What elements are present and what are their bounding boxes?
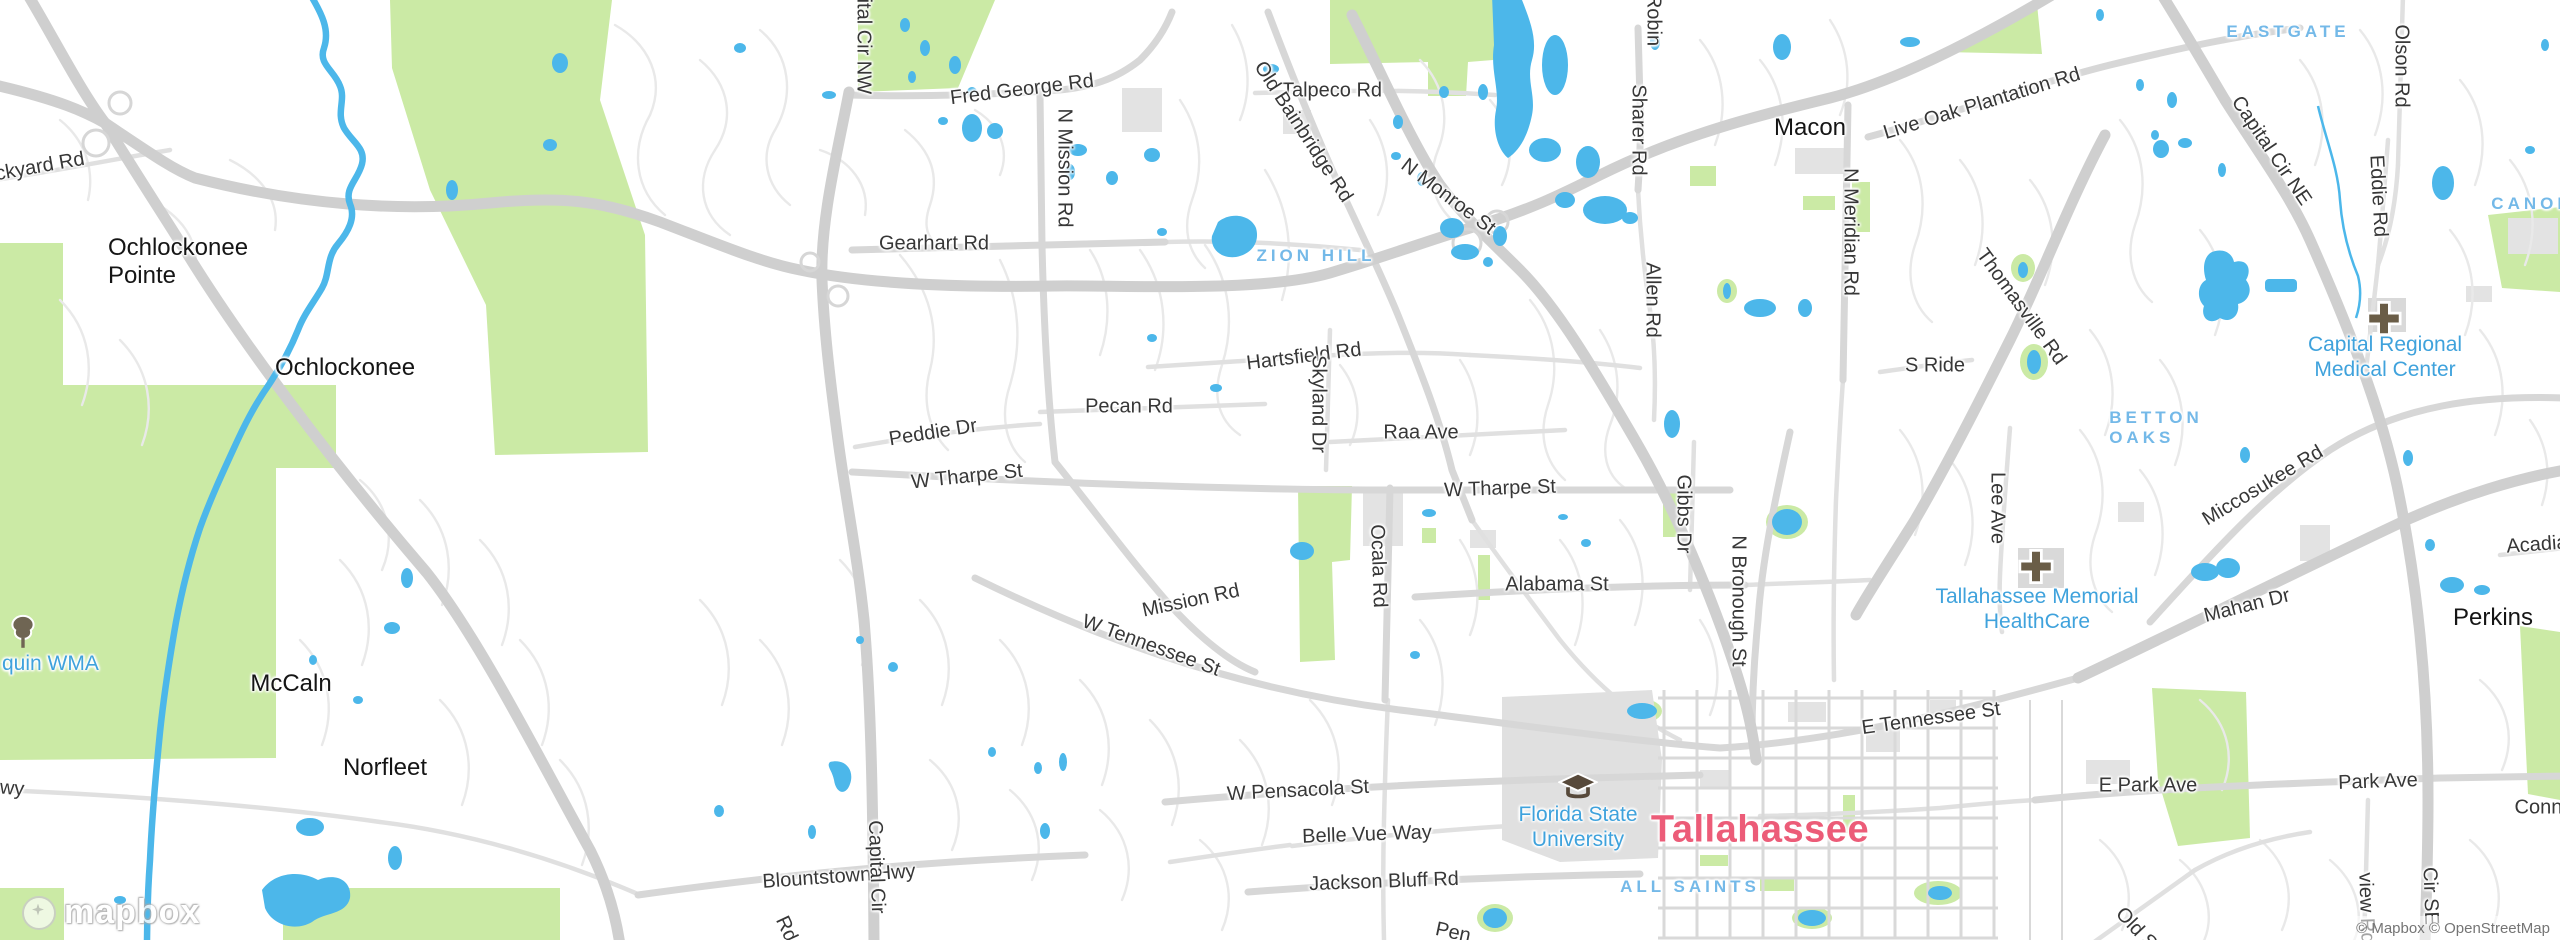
map-attribution[interactable]: © Mapbox © OpenStreetMap — [2346, 916, 2560, 940]
mapbox-wordmark: mapbox — [64, 893, 200, 932]
mapbox-logo-icon — [22, 896, 56, 930]
attribution-text: © Mapbox © OpenStreetMap — [2356, 920, 2550, 937]
map-canvas[interactable]: ckyard RdFred George RdGearhart RdTalpec… — [0, 0, 2560, 940]
park-areas — [0, 0, 2560, 940]
building-footprints — [1122, 88, 2558, 862]
map-basemap — [0, 0, 2560, 940]
mapbox-logo[interactable]: mapbox — [22, 893, 200, 932]
